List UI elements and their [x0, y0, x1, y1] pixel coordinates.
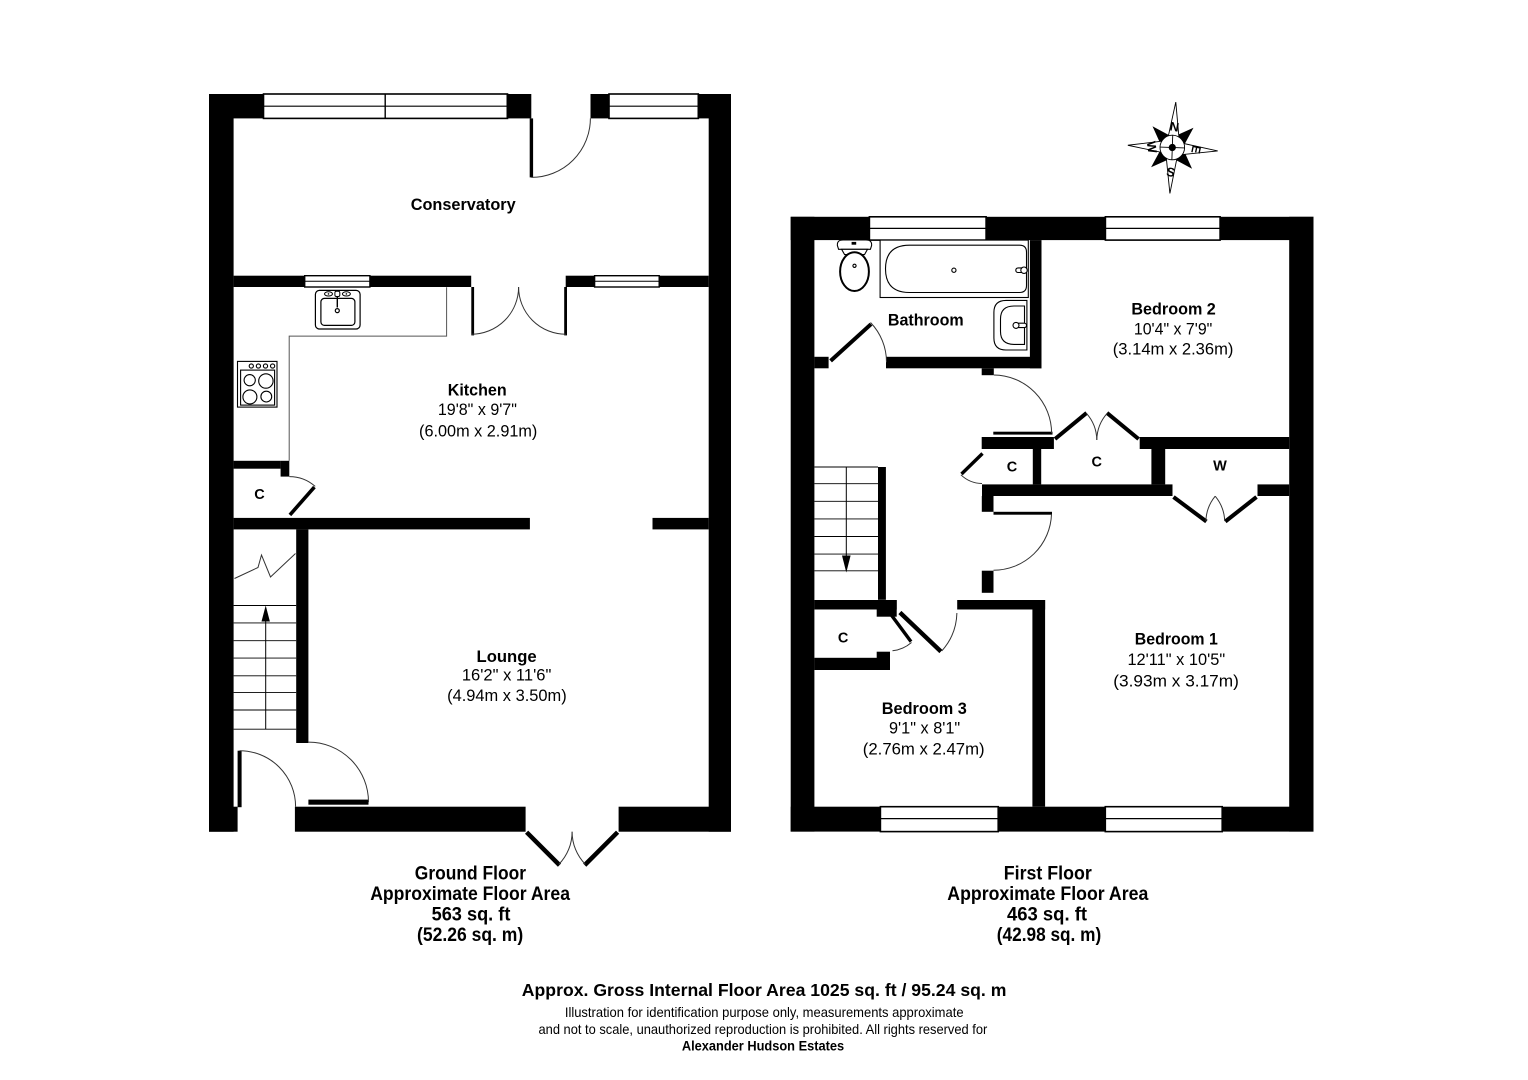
svg-text:(6.00m x 2.91m): (6.00m x 2.91m) — [419, 422, 537, 440]
svg-text:Approximate Floor Area: Approximate Floor Area — [370, 884, 570, 905]
svg-text:W: W — [1213, 458, 1227, 474]
svg-text:Bathroom: Bathroom — [888, 311, 964, 330]
svg-text:463 sq. ft: 463 sq. ft — [1007, 905, 1088, 926]
svg-text:(3.14m x 2.36m): (3.14m x 2.36m) — [1113, 341, 1234, 359]
svg-text:9'1" x 8'1": 9'1" x 8'1" — [889, 720, 960, 738]
svg-text:Approx. Gross Internal Floor A: Approx. Gross Internal Floor Area 1025 s… — [522, 980, 1007, 1000]
svg-text:Bedroom 1: Bedroom 1 — [1135, 630, 1218, 649]
svg-text:12'11" x 10'5": 12'11" x 10'5" — [1127, 651, 1225, 669]
svg-text:Bedroom 2: Bedroom 2 — [1131, 300, 1215, 319]
svg-text:(2.76m x 2.47m): (2.76m x 2.47m) — [863, 741, 985, 759]
svg-text:C: C — [1092, 455, 1103, 471]
svg-text:Lounge: Lounge — [477, 647, 537, 666]
svg-text:C: C — [1007, 460, 1018, 476]
svg-text:10'4" x 7'9": 10'4" x 7'9" — [1134, 320, 1213, 338]
svg-text:(3.93m x 3.17m): (3.93m x 3.17m) — [1113, 672, 1239, 690]
svg-text:C: C — [838, 631, 849, 647]
svg-text:19'8" x 9'7": 19'8" x 9'7" — [438, 401, 517, 419]
svg-text:and not to scale, unauthorized: and not to scale, unauthorized reproduct… — [539, 1021, 988, 1037]
svg-text:(42.98 sq. m): (42.98 sq. m) — [997, 925, 1101, 946]
svg-text:Conservatory: Conservatory — [411, 195, 517, 214]
svg-text:16'2" x 11'6": 16'2" x 11'6" — [462, 667, 552, 685]
svg-text:(4.94m x 3.50m): (4.94m x 3.50m) — [447, 687, 567, 705]
svg-text:W: W — [1144, 140, 1160, 154]
svg-text:563 sq. ft: 563 sq. ft — [432, 905, 511, 926]
svg-text:Approximate Floor Area: Approximate Floor Area — [947, 884, 1148, 905]
svg-text:Ground Floor: Ground Floor — [415, 863, 527, 884]
svg-text:Illustration for identificatio: Illustration for identification purpose … — [565, 1004, 964, 1020]
svg-text:Bedroom 3: Bedroom 3 — [882, 699, 967, 718]
svg-text:First Floor: First Floor — [1004, 863, 1093, 884]
svg-text:C: C — [254, 487, 265, 503]
svg-text:(52.26 sq. m): (52.26 sq. m) — [417, 925, 523, 946]
svg-text:Alexander Hudson Estates: Alexander Hudson Estates — [682, 1038, 844, 1054]
svg-text:Kitchen: Kitchen — [448, 381, 507, 400]
